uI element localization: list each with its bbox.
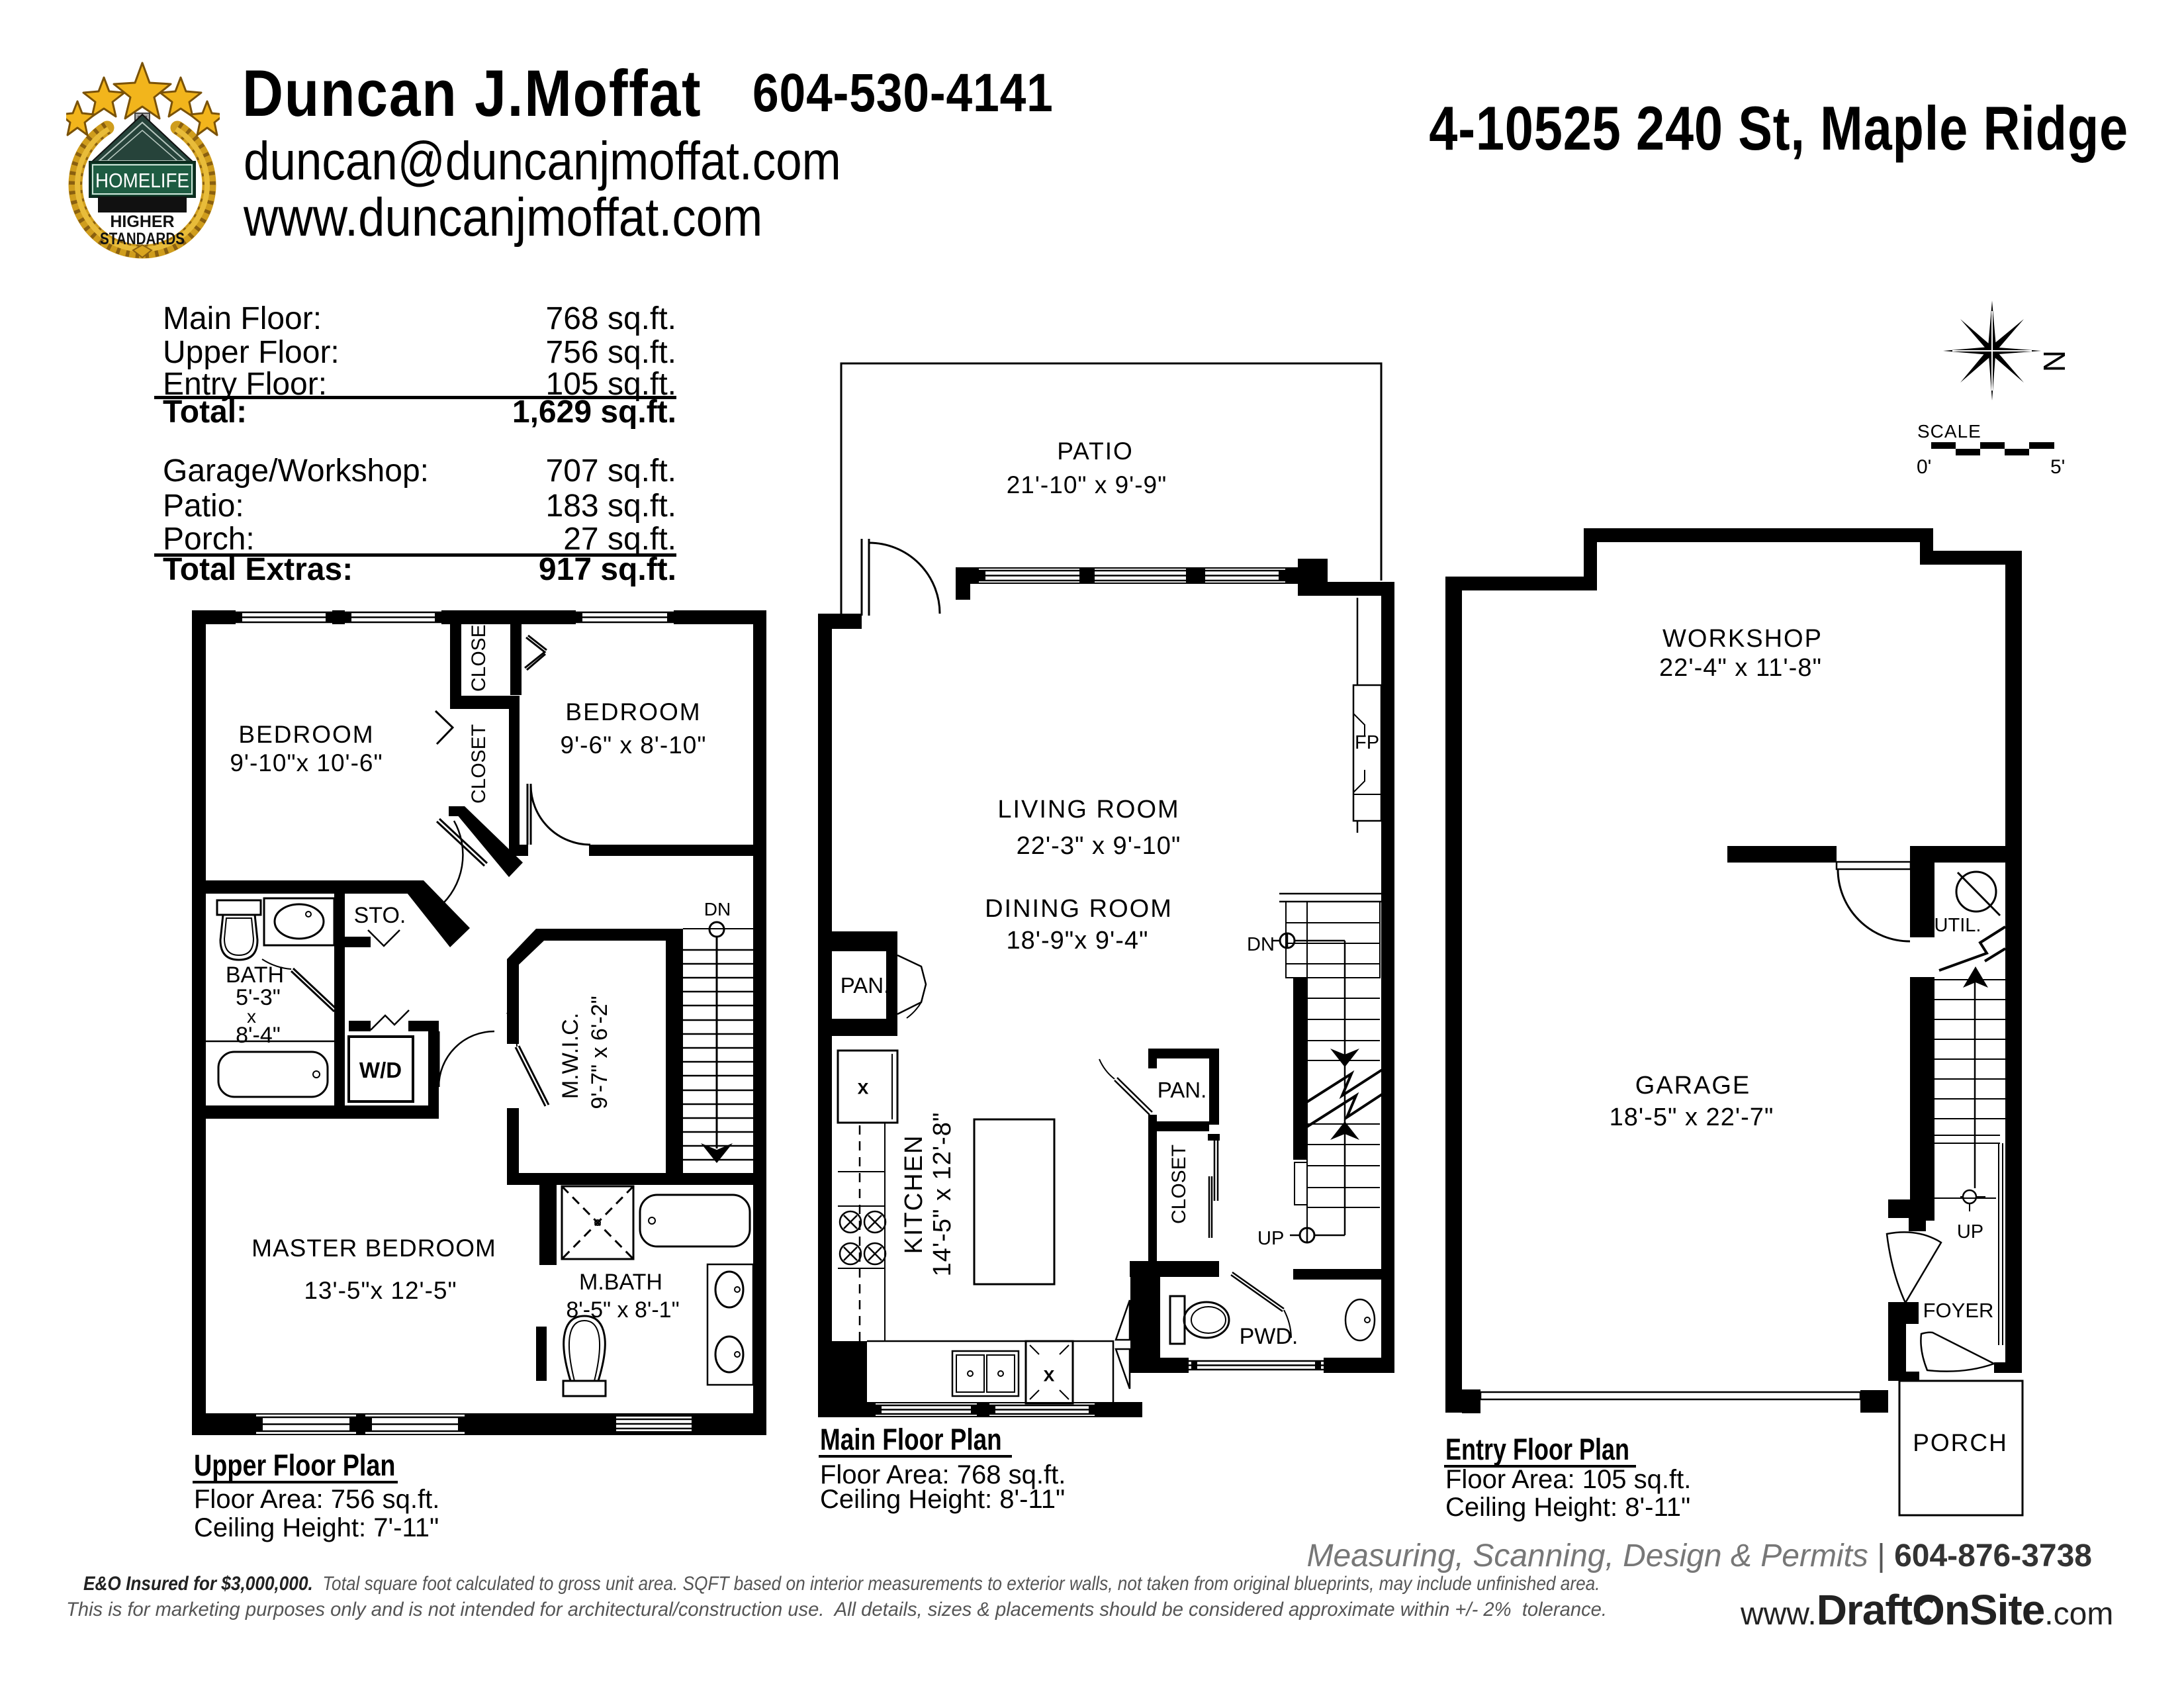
svg-text:9'-6" x 8'-10": 9'-6" x 8'-10" (561, 731, 707, 759)
svg-text:9'-10"x 10'-6": 9'-10"x 10'-6" (230, 749, 383, 776)
svg-text:W/D: W/D (359, 1058, 402, 1082)
svg-text:STO.: STO. (354, 903, 406, 928)
svg-text:DINING ROOM: DINING ROOM (985, 895, 1173, 923)
svg-text:PAN.: PAN. (841, 973, 890, 998)
svg-text:5'-3": 5'-3" (236, 985, 281, 1010)
svg-text:PWD.: PWD. (1240, 1324, 1298, 1349)
svg-text:STANDARDS: STANDARDS (100, 230, 185, 248)
svg-text:WORKSHOP: WORKSHOP (1662, 625, 1823, 653)
svg-text:0': 0' (1917, 456, 1931, 478)
svg-text:PORCH: PORCH (1913, 1429, 2008, 1456)
svg-text:13'-5"x 12'-5": 13'-5"x 12'-5" (304, 1277, 457, 1304)
svg-text:GARAGE: GARAGE (1635, 1072, 1751, 1100)
svg-text:x: x (1044, 1364, 1054, 1385)
svg-text:21'-10" x 9'-9": 21'-10" x 9'-9" (1007, 471, 1167, 498)
svg-text:22'-4" x 11'-8": 22'-4" x 11'-8" (1659, 654, 1822, 682)
svg-text:8'-5" x 8'-1": 8'-5" x 8'-1" (566, 1297, 679, 1323)
svg-text:CLOSET: CLOSET (1168, 1145, 1190, 1224)
svg-text:UP: UP (1957, 1221, 1983, 1243)
svg-text:x: x (858, 1076, 868, 1098)
svg-text:PAN.: PAN. (1158, 1078, 1207, 1102)
svg-text:SCALE: SCALE (1917, 421, 1981, 442)
svg-text:BEDROOM: BEDROOM (565, 698, 701, 726)
svg-text:UP: UP (1257, 1228, 1284, 1249)
svg-text:HIGHER: HIGHER (110, 212, 174, 231)
svg-text:18'-5" x 22'-7": 18'-5" x 22'-7" (1610, 1103, 1774, 1131)
svg-text:DN: DN (1247, 934, 1275, 955)
svg-text:HOMELIFE: HOMELIFE (95, 169, 189, 192)
svg-text:22'-3" x 9'-10": 22'-3" x 9'-10" (1017, 832, 1181, 860)
svg-text:8'-4": 8'-4" (236, 1023, 281, 1048)
svg-text:MASTER BEDROOM: MASTER BEDROOM (251, 1235, 496, 1262)
svg-text:9'-7" x 6'-2": 9'-7" x 6'-2" (587, 996, 612, 1109)
svg-text:M.BATH: M.BATH (579, 1270, 662, 1295)
svg-text:FOYER: FOYER (1923, 1299, 1994, 1322)
svg-text:18'-9"x 9'-4": 18'-9"x 9'-4" (1006, 927, 1148, 955)
svg-text:BEDROOM: BEDROOM (238, 721, 374, 748)
svg-text:5': 5' (2050, 456, 2065, 478)
svg-text:PATIO: PATIO (1057, 438, 1134, 465)
svg-text:BATH: BATH (226, 962, 284, 988)
svg-text:N: N (2037, 350, 2071, 372)
svg-text:CLOSET: CLOSET (468, 612, 490, 692)
svg-text:KITCHEN: KITCHEN (900, 1135, 928, 1254)
svg-text:LIVING ROOM: LIVING ROOM (997, 796, 1179, 823)
svg-text:CLOSET: CLOSET (468, 724, 490, 804)
svg-text:UTIL.: UTIL. (1934, 915, 1981, 936)
svg-text:FP: FP (1355, 732, 1379, 753)
svg-text:DN: DN (704, 899, 731, 919)
svg-text:14'-5" x 12'-8": 14'-5" x 12'-8" (929, 1112, 956, 1277)
svg-text:M.W.I.C.: M.W.I.C. (558, 1013, 583, 1099)
